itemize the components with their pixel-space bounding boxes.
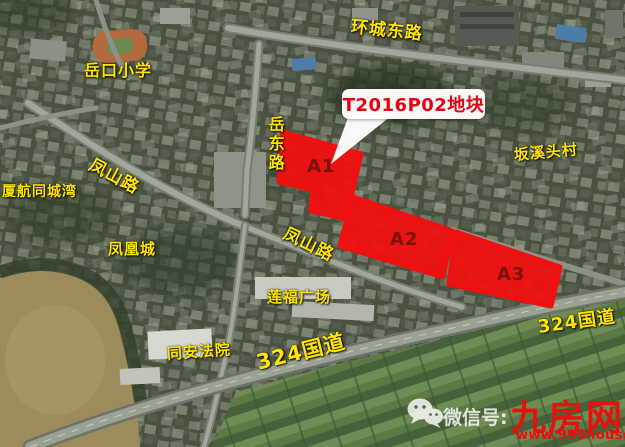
parcel-a2-label: A2 (390, 229, 418, 250)
plot-callout-label: T2016P02地块 (343, 91, 485, 117)
wechat-icon (406, 397, 444, 431)
site-url: www.999house.com (516, 428, 625, 443)
wechat-id-label: 微信号: (443, 403, 508, 430)
place-label-xiahang-tongchengwan: 厦航同城湾 (2, 185, 77, 200)
plot-callout: T2016P02地块 (342, 89, 485, 119)
place-label-fenghuang-city: 凤凰城 (108, 241, 156, 258)
place-label-lianfu-plaza: 莲福广场 (267, 289, 331, 306)
road-label-yuedong: 岳东路 (266, 116, 284, 173)
parcel-a3-label: A3 (497, 264, 525, 285)
place-label-yuekou-school: 岳口小学 (84, 62, 152, 80)
satellite-map: T2016P02地块 A1 A2 A3 岳口小学 环城东路 岳东路 凤山路 厦航… (0, 0, 625, 447)
parcel-a1-label: A1 (307, 156, 335, 177)
